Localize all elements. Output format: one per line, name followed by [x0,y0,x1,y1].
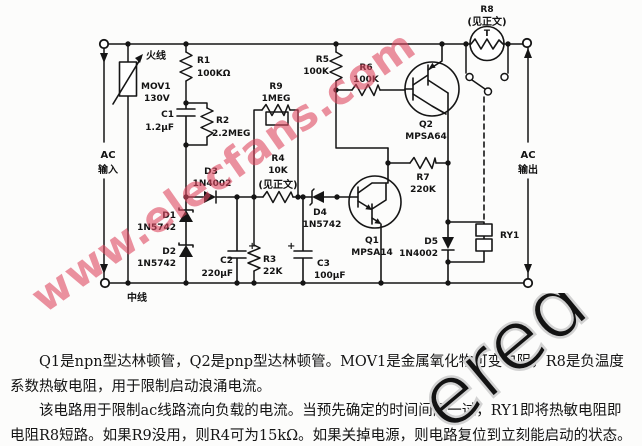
r5-value-label: 100K [303,67,330,77]
d1-value-label: 1N5742 [137,223,176,233]
r4-ref-label: R4 [271,154,284,164]
scanned-page: AC 输入 AC 输出 火线 中线 MOV1 130V [0,0,642,446]
arrow-down-icon [100,264,108,274]
r4-value-label: 10K [268,166,289,176]
r8-note-label: (见正文) [467,15,506,28]
relay-coil-ry1: RY1 [448,97,519,262]
r6-ref-label: R6 [359,63,372,73]
circuit-schematic: AC 输入 AC 输出 火线 中线 MOV1 130V [0,0,642,346]
description-text: Q1是npn型达林顿管，Q2是pnp型达林顿管。MOV1是金属氧化物可变电阻，R… [10,350,634,446]
r1-ref-label: R1 [197,56,210,66]
live-wire-label: 火线 [146,49,166,62]
r6-value-label: 100K [353,75,380,85]
resistor-r6: R6 100K [336,63,405,96]
capacitor-c1: C1 1.2μF [145,103,195,145]
r3-value-label: 22K [263,267,284,277]
r8-thermistor-letter: T [484,29,491,39]
r1-value-label: 100KΩ [197,69,231,79]
r7-ref-label: R7 [416,173,429,183]
capacitor-c2: + C2 220μF [201,197,256,283]
d2-ref-label: D2 [162,247,176,257]
c1-ref-label: C1 [161,110,174,120]
resistor-r3: R3 22K [248,197,284,283]
resistor-r5: R5 100K [303,44,342,90]
mov1-ref-label: MOV1 [141,82,171,92]
d3-value-label: 1N4002 [193,179,232,189]
ac-output-label-1: AC [520,150,535,161]
transistor-q1: Q1 MPSA14 [349,148,401,283]
d1-ref-label: D1 [162,211,176,221]
mov1-value-label: 130V [144,94,170,104]
q2-ref-label: Q2 [419,120,433,130]
junction-dots [125,41,510,285]
d4-ref-label: D4 [313,208,327,218]
zener-d1-d2: D1 1N5742 D2 1N5742 [137,197,193,283]
ac-output-label-2: 输出 [518,163,538,176]
d5-value-label: 1N4002 [399,249,438,259]
c3-plus-sign: + [287,241,295,252]
terminal-ac-input-bottom [101,279,109,287]
r7-value-label: 220K [410,185,437,195]
ac-input-line: AC 输入 [98,48,118,279]
transistor-q2: Q2 MPSA64 [405,44,459,163]
ac-output-line: AC 输出 [518,47,538,278]
q2-value-label: MPSA64 [405,132,447,142]
mid-line-d3-r4-d4: D3 1N4002 D4 1N5742 R4 10K (见正文) [186,145,350,230]
d3-ref-label: D3 [204,167,218,177]
collector-feed-wire [336,90,388,148]
r2-value-label: 2.2MEG [212,129,250,139]
arrow-up-icon [524,48,532,58]
neutral-wire-label: 中线 [127,291,147,304]
c1-value-label: 1.2μF [145,123,174,133]
d4-value-label: 1N5742 [303,220,342,230]
r9-value-label: 1MEG [262,94,291,104]
description-paragraph-2: 该电路用于限制ac线路流向负载的电流。当预先确定的时间间隔一过，RY1即将热敏电… [10,399,634,446]
terminal-ac-input-top [100,40,108,48]
ac-input-label-1: AC [100,150,115,161]
r8-ref-label: R8 [480,5,493,15]
c3-value-label: 100μF [314,271,346,281]
arrow-down-icon [524,264,532,274]
thermistor-r8: T R8 (见正文) [467,5,506,61]
ry1-ref-label: RY1 [500,231,519,241]
ac-input-label-2: 输入 [98,163,118,176]
r5-ref-label: R5 [316,55,329,65]
resistor-r1: R1 100KΩ [180,44,231,103]
terminal-ac-output-bottom [524,279,532,287]
terminal-ac-output-top [523,39,531,47]
d5-ref-label: D5 [424,237,438,247]
description-paragraph-1: Q1是npn型达林顿管，Q2是pnp型达林顿管。MOV1是金属氧化物可变电阻，R… [10,350,634,399]
r9-ref-label: R9 [269,82,282,92]
r3-ref-label: R3 [263,255,276,265]
d2-value-label: 1N5742 [137,259,176,269]
q1-ref-label: Q1 [365,236,379,246]
r4-note-label: (见正文) [258,178,297,191]
arrow-down-icon [100,53,108,63]
r2-ref-label: R2 [216,116,229,126]
c3-ref-label: C3 [317,259,330,269]
q1-value-label: MPSA14 [351,248,393,258]
c2-value-label: 220μF [201,269,233,279]
c2-ref-label: C2 [220,256,233,266]
